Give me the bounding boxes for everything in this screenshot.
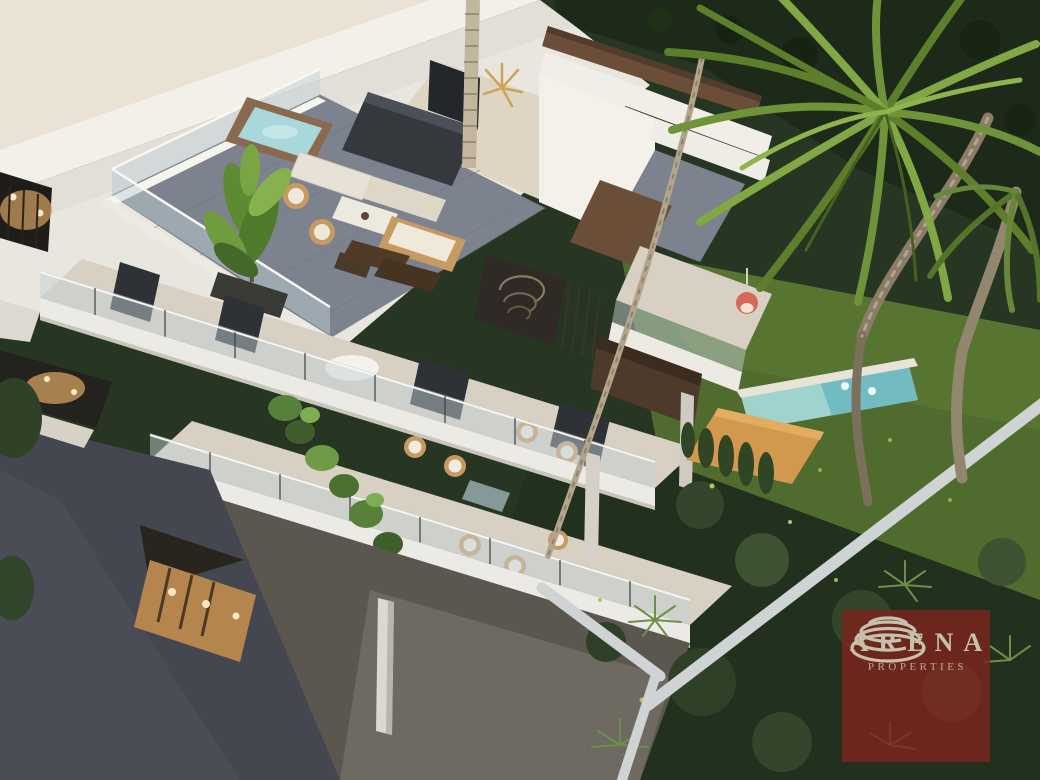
architectural-rendering: ARENA PROPERTIES xyxy=(0,0,1040,780)
arena-swirl-icon xyxy=(842,610,934,668)
arena-properties-watermark: ARENA PROPERTIES xyxy=(842,610,990,762)
watermark-subtitle: PROPERTIES xyxy=(865,661,967,673)
